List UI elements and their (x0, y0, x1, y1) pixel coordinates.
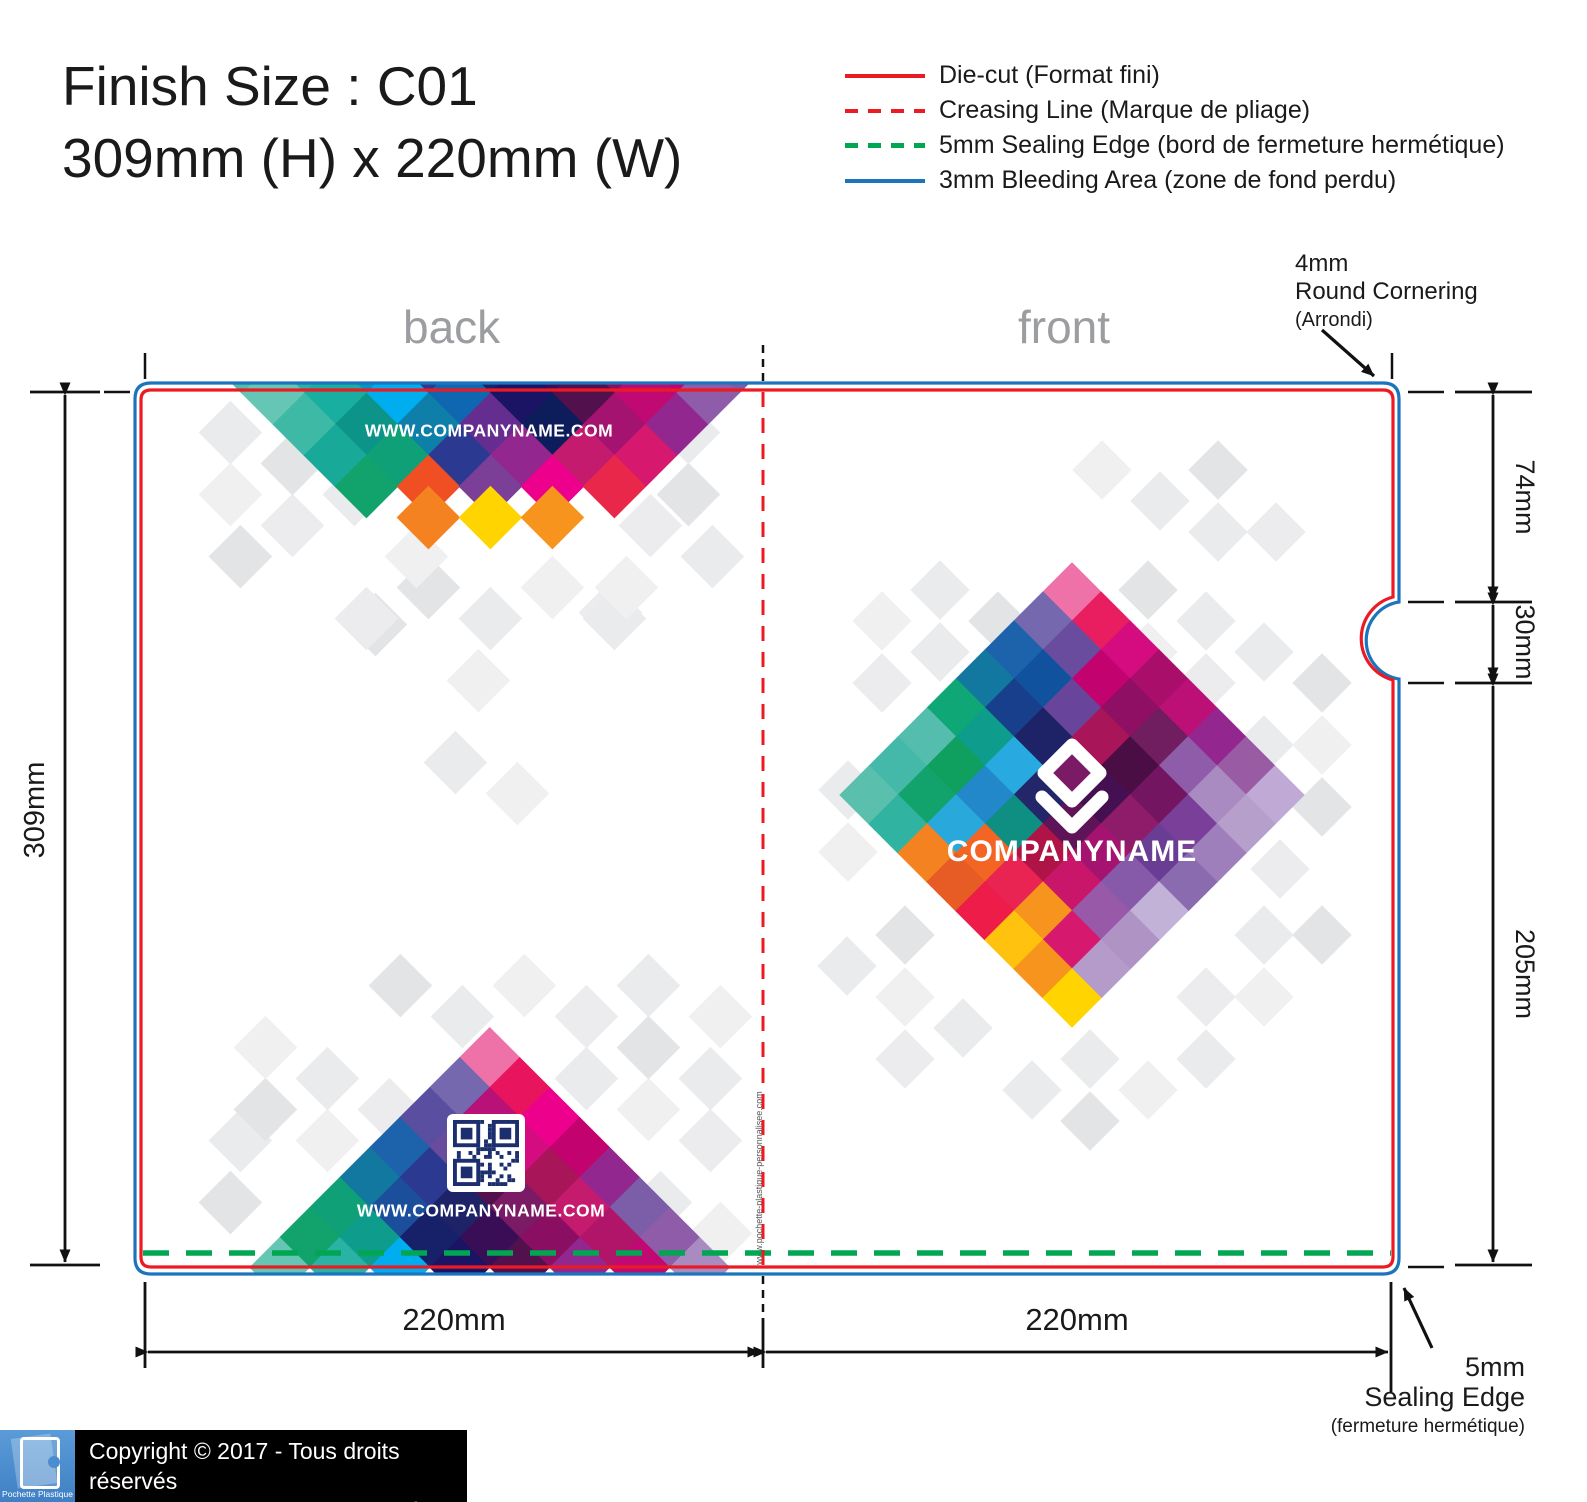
corner-annotation-line2: Round Cornering (1295, 278, 1478, 306)
legend-row-diecut: Die-cut (Format fini) (845, 58, 1505, 93)
sealing-annotation-line2: Sealing Edge (1190, 1382, 1525, 1412)
gray-diamond (423, 730, 486, 793)
gray-diamond (616, 953, 679, 1016)
footer: Pochette Plastique Copyright © 2017 - To… (0, 1430, 467, 1502)
gray-diamond (1002, 1060, 1061, 1119)
pochette-plastique-logo: Pochette Plastique (0, 1430, 75, 1502)
gray-diamond (875, 1029, 934, 1088)
title-line2: 309mm (H) x 220mm (W) (62, 122, 682, 194)
legend-label: Creasing Line (Marque de pliage) (939, 96, 1310, 125)
gray-diamond (1292, 777, 1351, 836)
gray-diamond (817, 936, 876, 995)
gray-diamond (1292, 653, 1351, 712)
crease-line-swatch (845, 109, 925, 113)
gray-diamond (1060, 1029, 1119, 1088)
legend-row-sealing: 5mm Sealing Edge (bord de fermeture herm… (845, 128, 1505, 163)
sealing-annotation-line3: (fermeture hermétique) (1190, 1412, 1525, 1442)
sealing-annotation: 5mm Sealing Edge (fermeture hermétique) (1190, 1352, 1525, 1442)
sealing-line-swatch (845, 143, 925, 148)
page-title: Finish Size : C01 309mm (H) x 220mm (W) (62, 50, 682, 194)
gray-diamond (520, 555, 583, 618)
gray-diamond (852, 591, 911, 650)
gray-diamond (875, 967, 934, 1026)
gray-diamond (1072, 440, 1131, 499)
gray-diamond (688, 984, 751, 1047)
gray-diamond (818, 822, 877, 881)
sealing-annotation-line1: 5mm (1190, 1352, 1525, 1382)
logo-text: Pochette Plastique (0, 1489, 75, 1499)
gray-diamond (875, 905, 934, 964)
gray-diamond (208, 524, 271, 587)
gray-diamond (1188, 502, 1247, 561)
back-bottom-url-text: WWW.COMPANYNAME.COM (357, 1201, 605, 1222)
gray-diamond (492, 953, 555, 1016)
gray-diamond (1176, 1029, 1235, 1088)
dim-label-lower-section: 205mm (1510, 929, 1540, 1019)
gray-diamond (1292, 905, 1351, 964)
gray-diamond (554, 984, 617, 1047)
corner-annotation-line1: 4mm (1295, 250, 1478, 278)
pocket-artwork: WWW.COMPANYNAME.COM WWW.COMPANYNAME.COM … (135, 383, 1399, 1274)
gray-diamond (1188, 440, 1247, 499)
gray-diamond (933, 998, 992, 1057)
gray-diamond (485, 761, 548, 824)
gray-diamond (616, 1015, 679, 1078)
gray-diamond (680, 524, 743, 587)
gray-diamond (233, 1015, 296, 1078)
folder-notch (48, 1456, 60, 1468)
gray-diamond (260, 493, 323, 556)
diecut-line-swatch (845, 74, 925, 78)
title-line1: Finish Size : C01 (62, 50, 682, 122)
corner-callout-arrow (1322, 330, 1374, 376)
crease-url-text: www.pochette-plastique-personnalisee.com (754, 1091, 764, 1265)
legend-row-bleed: 3mm Bleeding Area (zone de fond perdu) (845, 163, 1505, 198)
gray-diamond (1246, 502, 1305, 561)
sealing-callout-arrow (1404, 1288, 1432, 1348)
gray-diamond (1118, 1060, 1177, 1119)
gray-diamond (678, 1046, 741, 1109)
gray-diamond (1060, 1091, 1119, 1150)
gray-diamond (678, 1108, 741, 1171)
gray-diamond (1250, 839, 1309, 898)
gray-diamond (295, 1046, 358, 1109)
gray-diamond (1234, 905, 1293, 964)
corner-annotation: 4mm Round Cornering (Arrondi) (1295, 250, 1478, 334)
gray-diamond (1176, 591, 1235, 650)
dim-label-notch: 30mm (1510, 604, 1540, 679)
corner-annotation-line3: (Arrondi) (1295, 306, 1478, 334)
front-panel-label: front (1018, 300, 1110, 354)
gray-diamond (1130, 471, 1189, 530)
legend-label: 3mm Bleeding Area (zone de fond perdu) (939, 166, 1396, 195)
back-top-url-text: WWW.COMPANYNAME.COM (365, 421, 613, 442)
dim-label-front-width: 220mm (1025, 1302, 1128, 1337)
gray-diamond (1118, 560, 1177, 619)
gray-diamond (1292, 715, 1351, 774)
gray-diamond (1234, 967, 1293, 1026)
qr-code (447, 1114, 525, 1192)
legend-label: 5mm Sealing Edge (bord de fermeture herm… (939, 131, 1505, 160)
gray-diamond (616, 1077, 679, 1140)
gray-diamond (446, 648, 509, 711)
dim-label-height: 309mm (19, 762, 51, 859)
gray-diamond (910, 560, 969, 619)
gray-diamond (1176, 967, 1235, 1026)
dim-label-top-section: 74mm (1510, 459, 1540, 534)
gray-diamond (198, 400, 261, 463)
gray-diamond (1234, 622, 1293, 681)
legend-label: Die-cut (Format fini) (939, 61, 1160, 90)
gray-diamond (198, 462, 261, 525)
gray-diamond (295, 1108, 358, 1171)
page: Finish Size : C01 309mm (H) x 220mm (W) … (0, 0, 1587, 1502)
dim-label-back-width: 220mm (402, 1302, 505, 1337)
gray-diamond (368, 953, 431, 1016)
bleed-line-swatch (845, 179, 925, 183)
back-panel-label: back (403, 300, 500, 354)
gray-diamond (458, 586, 521, 649)
copyright-line2: Pochette Plastique Personnalisée Couleur (89, 1496, 467, 1502)
copyright-line1: Copyright © 2017 - Tous droits réservés (89, 1436, 467, 1496)
gray-diamond (852, 653, 911, 712)
company-name-text: COMPANYNAME (947, 835, 1197, 869)
gray-diamond (198, 1170, 261, 1233)
legend: Die-cut (Format fini) Creasing Line (Mar… (845, 58, 1505, 198)
copyright-bar: Copyright © 2017 - Tous droits réservés … (75, 1430, 467, 1502)
legend-row-crease: Creasing Line (Marque de pliage) (845, 93, 1505, 128)
company-logo-icon (1017, 735, 1127, 845)
